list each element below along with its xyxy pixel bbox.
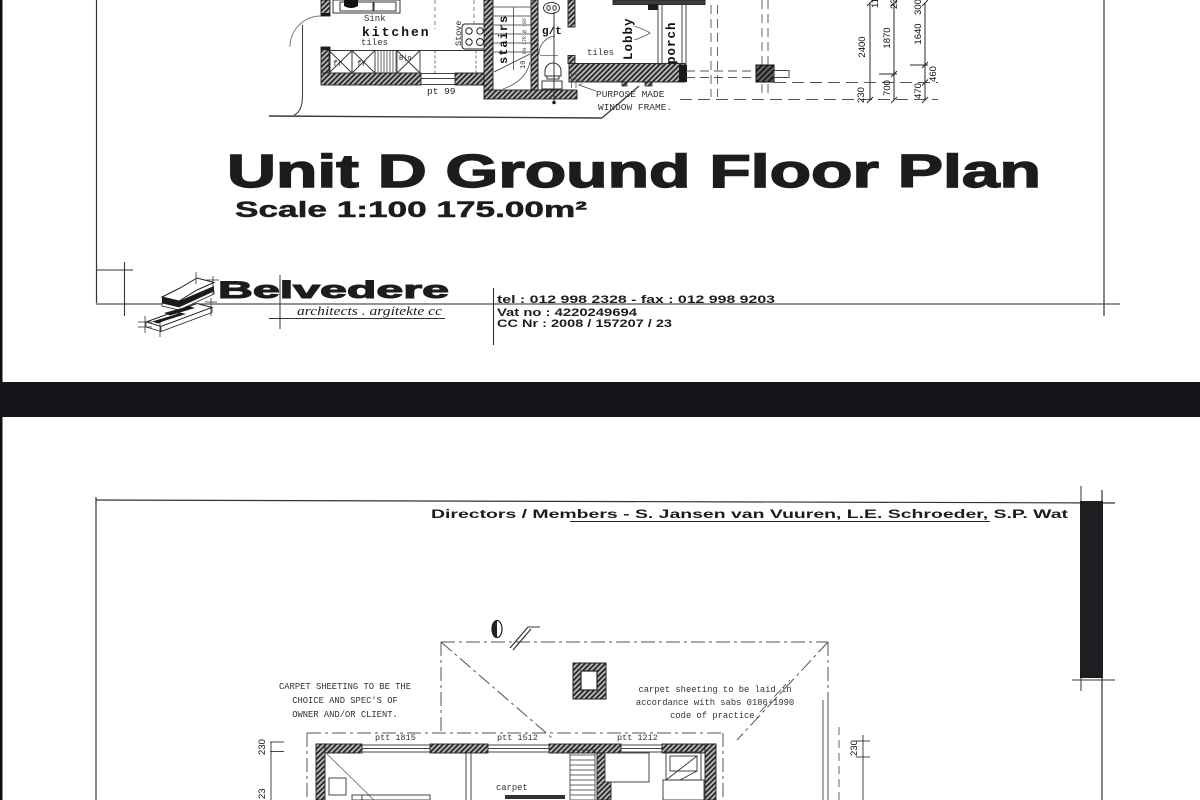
svg-text:110: 110 bbox=[870, 0, 881, 8]
svg-text:Directors / Members - S. Janse: Directors / Members - S. Jansen van Vuur… bbox=[431, 507, 1068, 521]
svg-text:Belvedere: Belvedere bbox=[218, 277, 449, 304]
svg-text:tel : 012 998 2328 - fax : 012: tel : 012 998 2328 - fax : 012 998 9203 bbox=[497, 294, 775, 306]
svg-text:DN 17R @ 185: DN 17R @ 185 bbox=[522, 18, 528, 54]
svg-text:460: 460 bbox=[928, 66, 939, 82]
svg-text:700: 700 bbox=[882, 80, 893, 96]
svg-text:CC Nr : 2008 / 157207 / 23: CC Nr : 2008 / 157207 / 23 bbox=[497, 318, 672, 330]
svg-text:B|o: B|o bbox=[399, 55, 412, 63]
svg-text:Lobby: Lobby bbox=[622, 17, 636, 60]
svg-text:1640: 1640 bbox=[913, 23, 924, 44]
svg-text:1870: 1870 bbox=[882, 27, 893, 48]
svg-text:PURPOSE MADE: PURPOSE MADE bbox=[596, 89, 665, 100]
svg-text:230: 230 bbox=[849, 740, 860, 756]
svg-text:OWNER AND/OR CLIENT.: OWNER AND/OR CLIENT. bbox=[292, 710, 398, 720]
svg-text:stairs: stairs bbox=[497, 15, 511, 64]
svg-text:230: 230 bbox=[257, 739, 268, 755]
svg-text:accordance with sabs 0186-1990: accordance with sabs 0186-1990 bbox=[636, 698, 794, 708]
svg-text:WINDOW FRAME.: WINDOW FRAME. bbox=[598, 102, 672, 113]
svg-text:Scale 1:100 175.00m²: Scale 1:100 175.00m² bbox=[235, 197, 587, 222]
svg-text:ptt 1815: ptt 1815 bbox=[375, 733, 416, 743]
svg-text:ptt 1212: ptt 1212 bbox=[617, 733, 658, 743]
svg-text:Sink: Sink bbox=[364, 14, 386, 24]
svg-text:470: 470 bbox=[913, 83, 924, 99]
svg-text:tiles: tiles bbox=[361, 38, 388, 48]
svg-text:carpet sheeting to be laid in: carpet sheeting to be laid in bbox=[638, 685, 791, 695]
svg-text:architects . argitekte cc: architects . argitekte cc bbox=[297, 304, 443, 318]
svg-text:230: 230 bbox=[889, 0, 900, 9]
svg-text:tiles: tiles bbox=[587, 48, 614, 58]
svg-text:230: 230 bbox=[856, 87, 867, 103]
svg-text:code of practice.: code of practice. bbox=[670, 711, 760, 721]
svg-text:300: 300 bbox=[913, 0, 924, 15]
svg-text:10: 10 bbox=[520, 61, 528, 69]
svg-text:carpet: carpet bbox=[496, 783, 528, 793]
svg-text:fr: fr bbox=[333, 60, 343, 69]
svg-text:2400: 2400 bbox=[857, 36, 868, 57]
svg-text:23: 23 bbox=[257, 788, 268, 799]
svg-text:CARPET SHEETING TO BE THE: CARPET SHEETING TO BE THE bbox=[279, 682, 411, 692]
svg-text:fr: fr bbox=[357, 60, 367, 69]
svg-text:ptt 1512: ptt 1512 bbox=[497, 733, 538, 743]
svg-text:porch: porch bbox=[665, 21, 679, 64]
svg-text:CHOICE AND SPEC'S OF: CHOICE AND SPEC'S OF bbox=[292, 696, 398, 706]
svg-text:Unit D Ground Floor Plan: Unit D Ground Floor Plan bbox=[227, 145, 1041, 197]
svg-text:pt 99: pt 99 bbox=[427, 86, 456, 97]
